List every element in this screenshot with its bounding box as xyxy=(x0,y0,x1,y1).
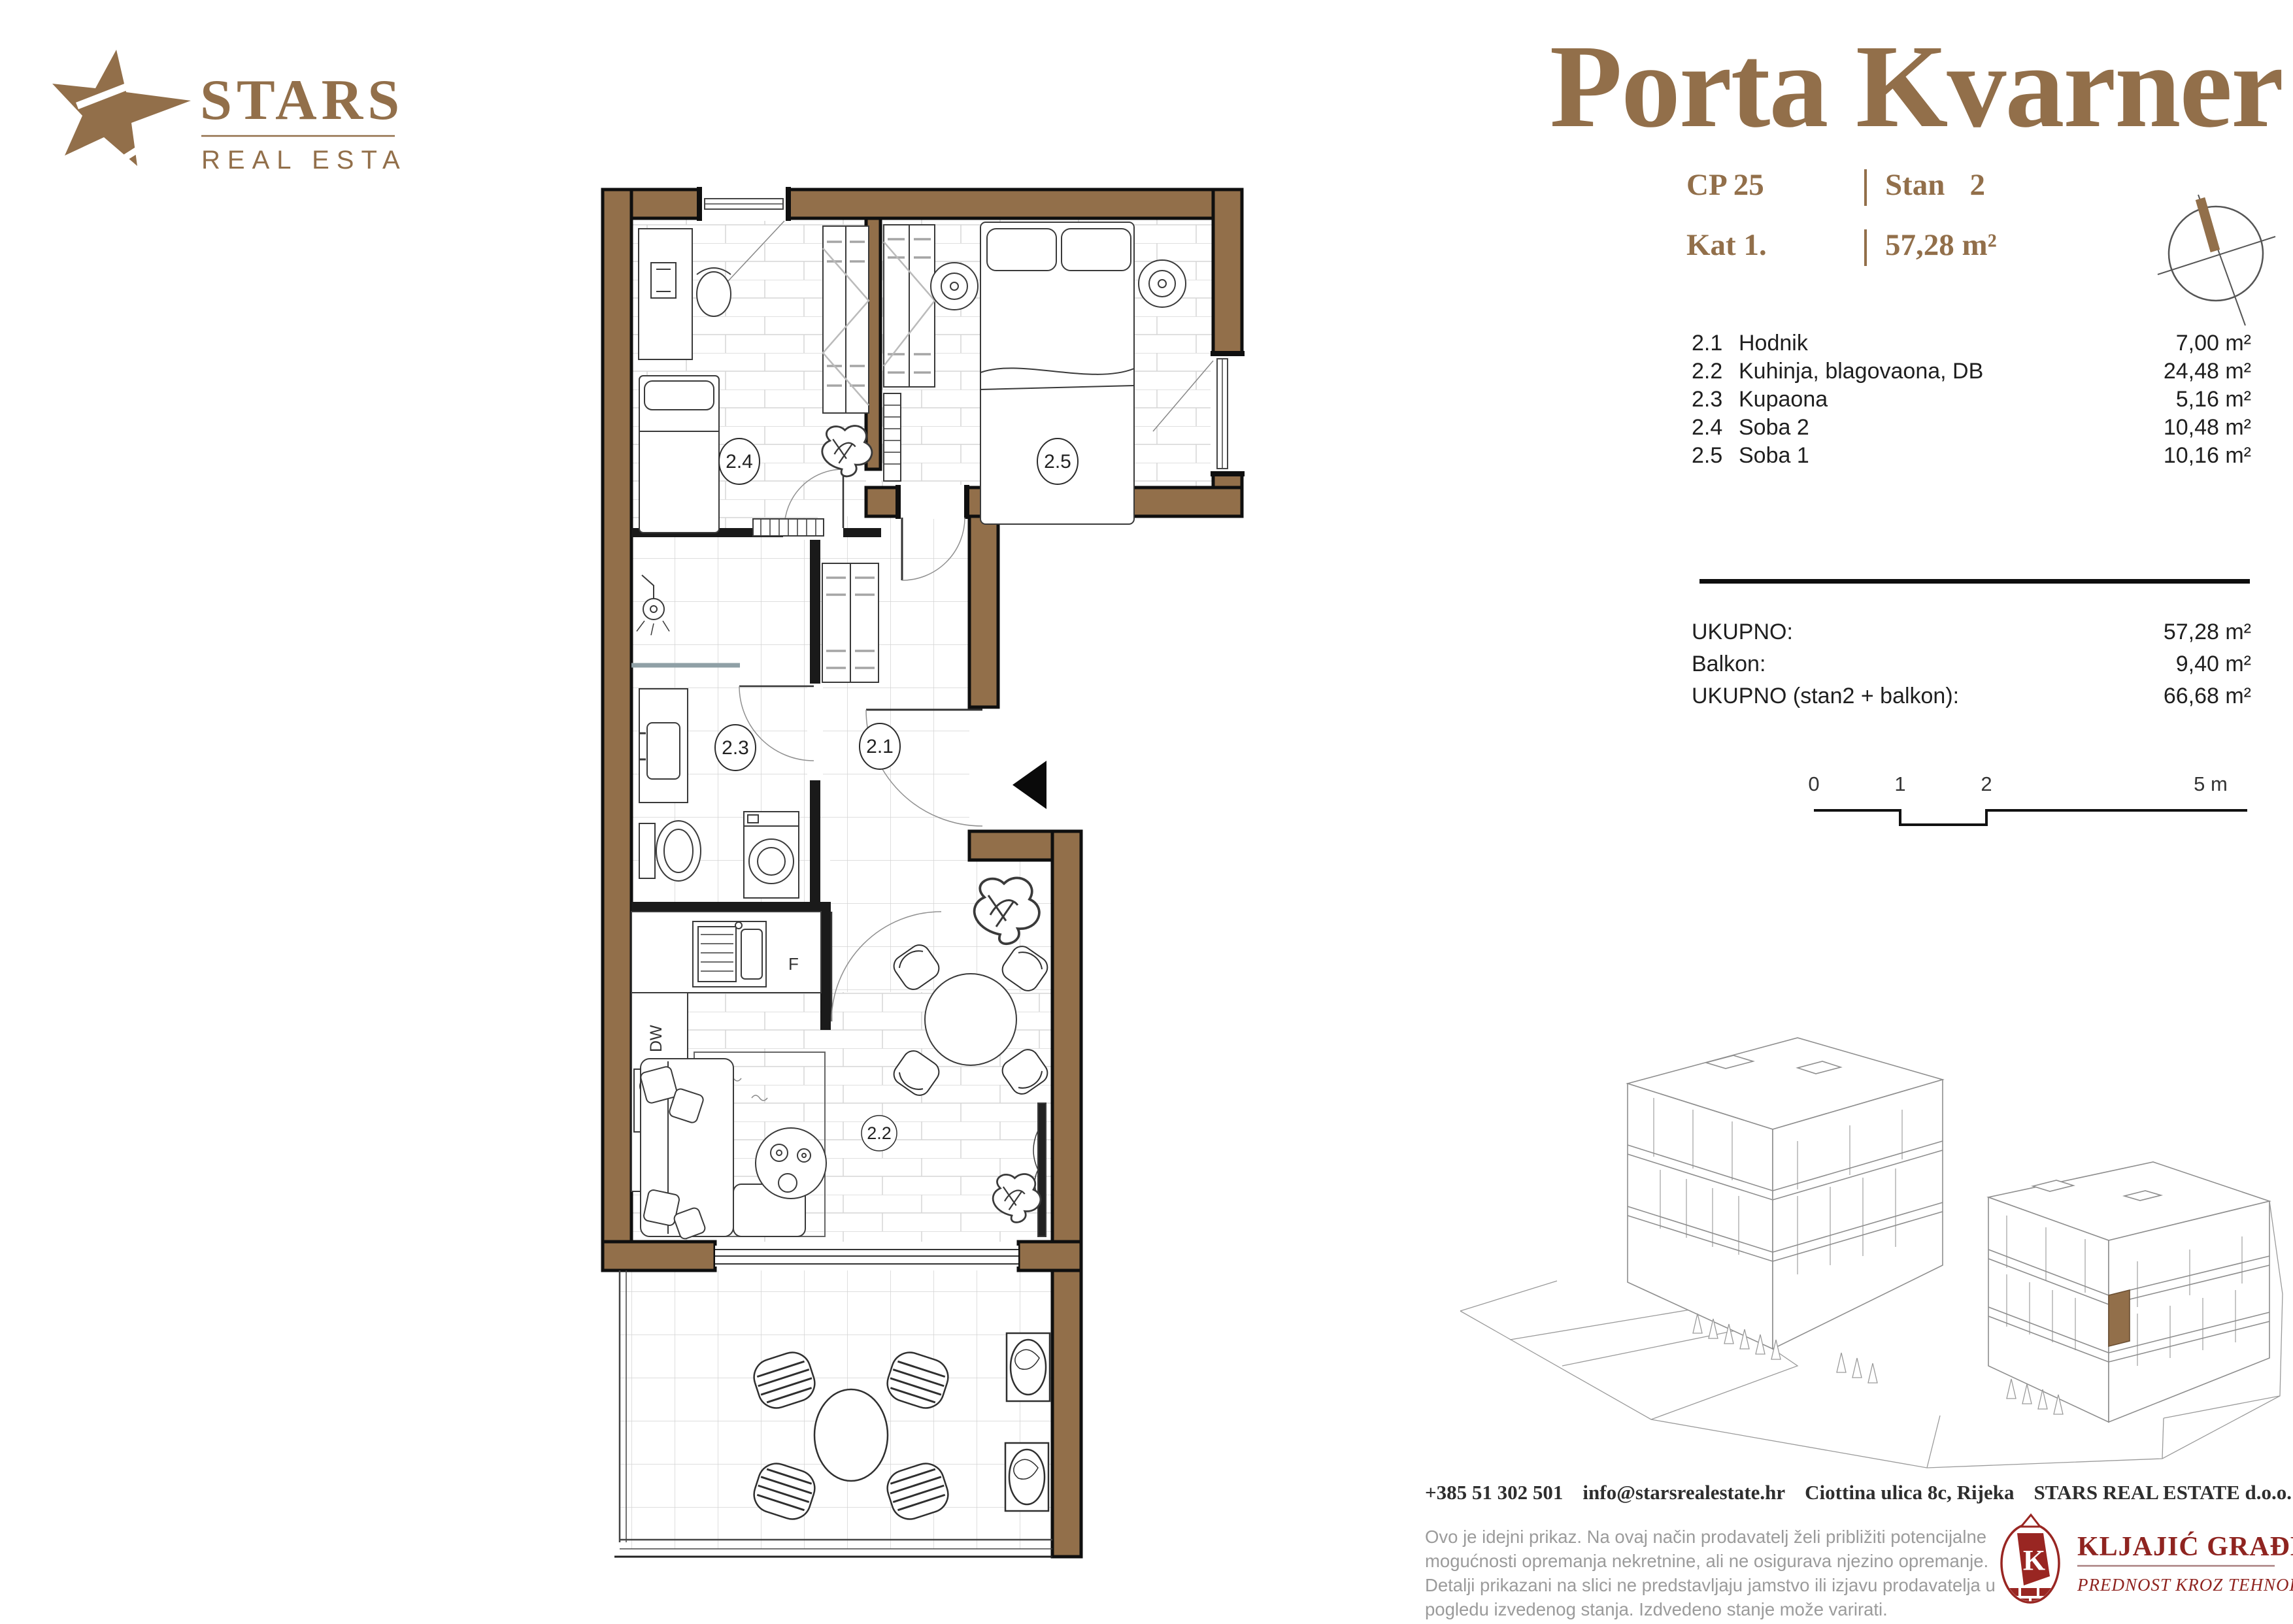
room-row: 2.1 Hodnik 7,00 m² xyxy=(1692,331,2251,359)
radiator xyxy=(884,393,901,481)
fridge-label: F xyxy=(788,954,799,974)
building-illustration xyxy=(1431,1000,2293,1483)
total-row: UKUPNO (stan2 + balkon): 66,68 m² xyxy=(1692,684,2251,716)
label-hodnik: 2.1 xyxy=(866,736,894,757)
brand-name: STARS xyxy=(200,69,404,132)
compass-icon xyxy=(2147,176,2286,329)
unit-stan-label: Stan xyxy=(1885,167,1945,203)
partner-name: KLJAJIĆ GRAĐENJE xyxy=(2077,1531,2293,1562)
room-row: 2.3 Kupaona 5,16 m² xyxy=(1692,387,2251,415)
meta-divider xyxy=(1864,229,1867,266)
partner-tagline: PREDNOST KROZ TEHNOLOGIJU xyxy=(2077,1575,2293,1595)
room-row: 2.2 Kuhinja, blagovaona, DB 24,48 m² xyxy=(1692,359,2251,387)
scale-tick-1: 1 xyxy=(1894,772,1905,795)
partner-logo: K KLJAJIĆ GRAĐENJE PREDNOST KROZ TEHNOLO… xyxy=(1979,1503,2293,1624)
hall-wardrobe xyxy=(822,563,879,682)
address: Ciottina ulica 8c, Rijeka xyxy=(1805,1481,2014,1504)
total-row: Balkon: 9,40 m² xyxy=(1692,652,2251,684)
floor-plan: F DW xyxy=(588,170,1255,1575)
scale-tick-2: 2 xyxy=(1981,772,1992,795)
contact-line: +385 51 302 501 info@starsrealestate.hr … xyxy=(1425,1481,2292,1504)
unit-meta: CP 25 Stan 2 Kat 1. 57,28 m² xyxy=(1686,167,2157,288)
totals-divider xyxy=(1699,579,2250,584)
unit-code: CP 25 xyxy=(1686,167,1864,203)
disclaimer: Ovo je idejni prikaz. Na ovaj način prod… xyxy=(1425,1525,1999,1621)
room-row: 2.4 Soba 2 10,48 m² xyxy=(1692,415,2251,443)
unit-stan-value: 2 xyxy=(1969,167,1985,203)
unit-area: 57,28 m² xyxy=(1885,227,1997,263)
brand-tagline: REAL ESTATE xyxy=(201,146,404,174)
label-soba1: 2.5 xyxy=(1044,451,1071,472)
page-title: Porta Kvarner xyxy=(1550,27,2283,146)
label-soba2: 2.4 xyxy=(726,451,753,472)
highlighted-unit xyxy=(2109,1290,2130,1346)
stars-logo: STARS REAL ESTATE xyxy=(46,38,404,187)
scale-tick-0: 0 xyxy=(1808,772,1819,795)
room-row: 2.5 Soba 1 10,16 m² xyxy=(1692,443,2251,471)
unit-floor: Kat 1. xyxy=(1686,227,1864,263)
tv xyxy=(1038,1103,1046,1236)
scale-bar-line xyxy=(1814,810,2247,825)
scale-bar: 0 1 2 5 m xyxy=(1805,769,2263,840)
scale-tick-5m: 5 m xyxy=(2194,772,2228,795)
total-row: UKUPNO: 57,28 m² xyxy=(1692,620,2251,652)
label-living: 2.2 xyxy=(867,1123,892,1143)
partner-monogram: K xyxy=(2023,1544,2045,1576)
totals: UKUPNO: 57,28 m² Balkon: 9,40 m² UKUPNO … xyxy=(1692,620,2251,716)
entrance-arrow-icon xyxy=(1013,761,1046,809)
dishwasher-label: DW xyxy=(647,1025,665,1052)
room-list: 2.1 Hodnik 7,00 m² 2.2 Kuhinja, blagovao… xyxy=(1692,331,2251,471)
stars-star-icon xyxy=(52,50,195,180)
label-kupaona: 2.3 xyxy=(722,737,749,759)
email: info@starsrealestate.hr xyxy=(1582,1481,1785,1504)
company: STARS REAL ESTATE d.o.o. xyxy=(2034,1481,2292,1504)
meta-divider xyxy=(1864,169,1867,206)
phone: +385 51 302 501 xyxy=(1425,1481,1563,1504)
